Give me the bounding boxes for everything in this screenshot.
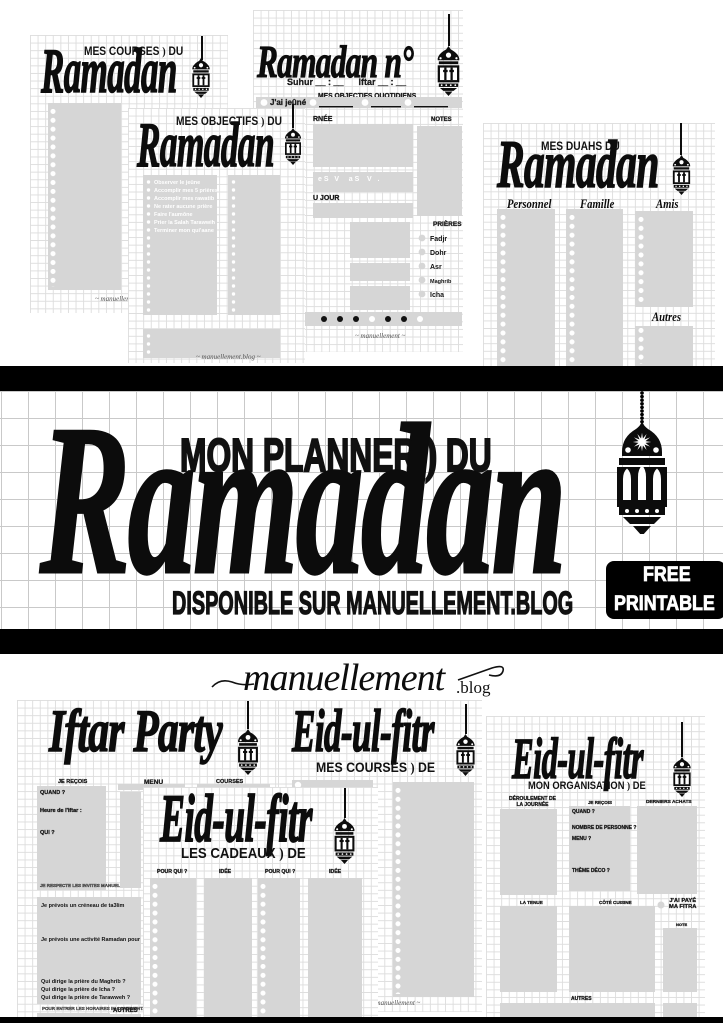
svg-text:Ne rater aucune prière: Ne rater aucune prière (154, 204, 212, 210)
svg-text:Dohr: Dohr (430, 250, 447, 257)
svg-text:Faire l'aumône: Faire l'aumône (154, 212, 193, 218)
svg-text:Accomplir mes 5 prières: Accomplir mes 5 prières (154, 188, 217, 194)
svg-text:Je prévois un créneau de ta3li: Je prévois un créneau de ta3lim (41, 903, 125, 909)
svg-text:Prier la Salah Tarawwih: Prier la Salah Tarawwih (154, 220, 216, 226)
svg-text:Icha: Icha (430, 292, 444, 299)
svg-text:Qui dirige la prière de Icha ?: Qui dirige la prière de Icha ? (41, 987, 116, 993)
svg-text:Qui dirige la prière du Maghri: Qui dirige la prière du Maghrib ? (41, 979, 126, 985)
svg-text:Accomplir mes rawatib: Accomplir mes rawatib (154, 196, 215, 202)
svg-text:Observer le jeûne: Observer le jeûne (154, 180, 200, 186)
svg-text:Asr: Asr (430, 264, 442, 271)
svg-text:Fadjr: Fadjr (430, 236, 447, 243)
svg-text:Je prévois une activité Ramada: Je prévois une activité Ramadan pour les… (41, 937, 141, 943)
svg-text:Terminer mon qui'aane: Terminer mon qui'aane (154, 228, 214, 234)
svg-text:Maghrib: Maghrib (430, 279, 452, 285)
svg-text:Qui dirige la prière de Taraww: Qui dirige la prière de Tarawweh ? (41, 995, 131, 1001)
